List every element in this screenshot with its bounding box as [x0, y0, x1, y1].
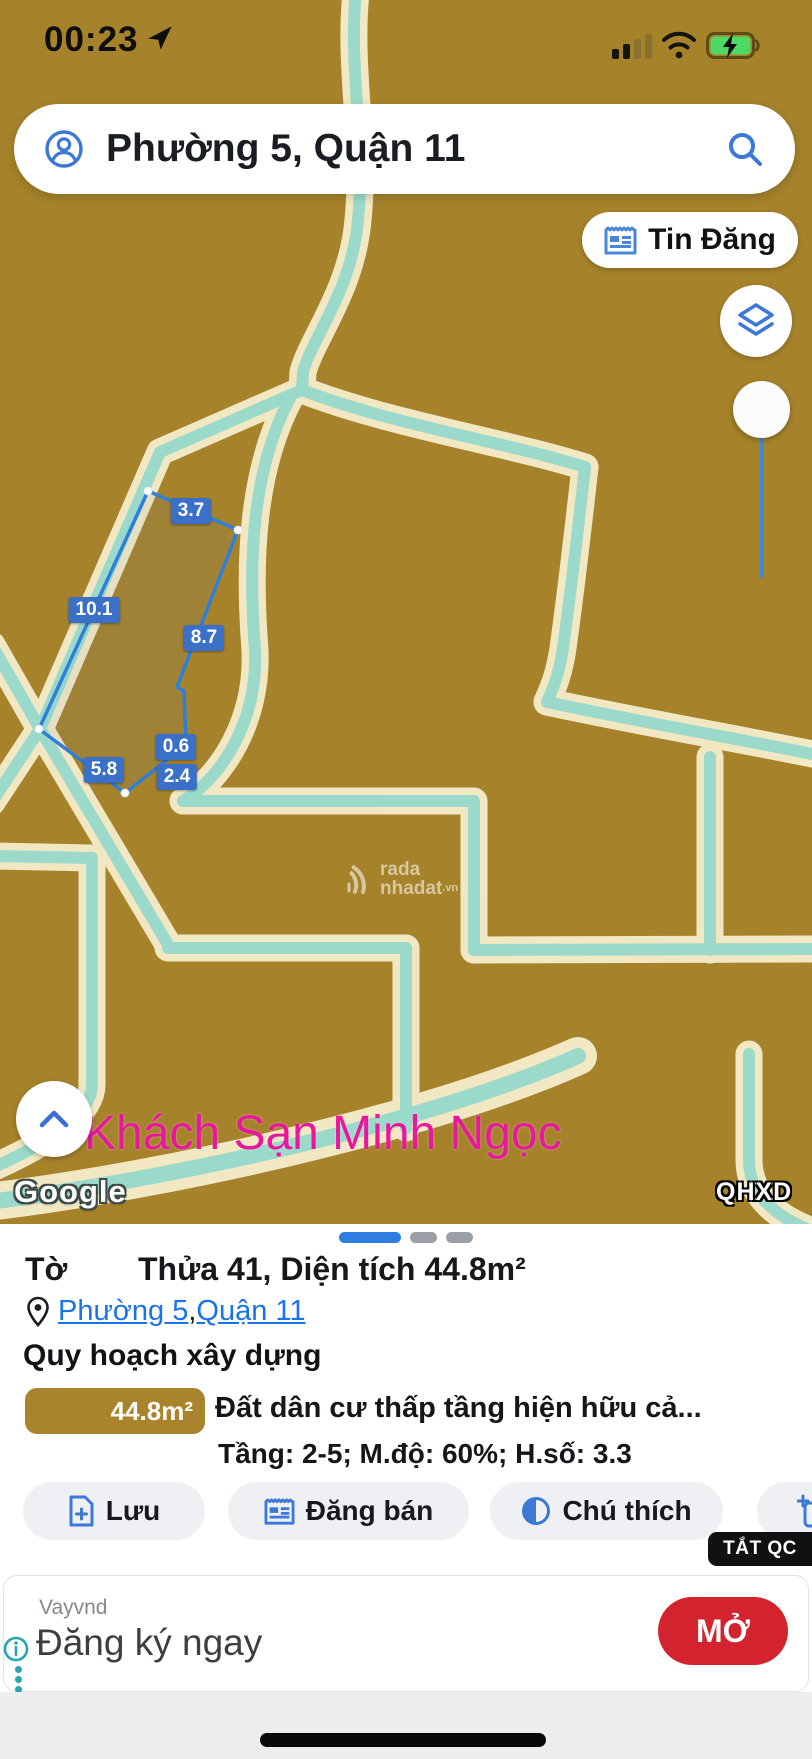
- legend-button-label: Chú thích: [562, 1495, 691, 1527]
- radanhadat-watermark: rada nhadat.vn: [344, 860, 458, 898]
- ad-info-icon[interactable]: [3, 1636, 29, 1662]
- location-row: Phường 5, Quận 11: [26, 1295, 306, 1328]
- save-button-label: Lưu: [106, 1495, 160, 1527]
- zoom-slider-knob[interactable]: [733, 381, 790, 438]
- contrast-icon: [521, 1496, 551, 1526]
- wifi-icon: [661, 31, 697, 59]
- layers-icon: [734, 301, 778, 341]
- page-dot[interactable]: [410, 1232, 437, 1243]
- legend-button[interactable]: Chú thích: [490, 1482, 723, 1540]
- radar-logo-icon: [344, 864, 374, 894]
- area-badge: 44.8m²: [25, 1388, 205, 1434]
- phone-screen: 3.7 10.1 8.7 0.6 5.8 2.4 rada nhadat.vn …: [0, 0, 812, 1759]
- dismiss-ad-button[interactable]: TẮT QC: [708, 1532, 812, 1566]
- measurement-label: 3.7: [171, 498, 211, 524]
- ad-options-icon[interactable]: [14, 1666, 22, 1693]
- save-button[interactable]: Lưu: [23, 1482, 205, 1540]
- search-bar[interactable]: Phường 5, Quận 11: [14, 104, 795, 194]
- google-logo: Google: [14, 1174, 127, 1210]
- listings-button-label: Tin Đăng: [648, 223, 776, 257]
- camera-plus-icon: [797, 1494, 812, 1528]
- expand-panel-button[interactable]: [16, 1081, 92, 1157]
- ad-headline[interactable]: Đăng ký ngay: [36, 1622, 262, 1664]
- map-pin-icon: [26, 1296, 50, 1328]
- qhxd-layer-label: QHXD: [716, 1178, 792, 1207]
- measurement-label: 5.8: [84, 757, 124, 783]
- zoning-type[interactable]: Đất dân cư thấp tầng hiện hữu cả...: [215, 1392, 795, 1425]
- battery-charging-icon: [706, 32, 762, 59]
- file-plus-icon: [68, 1495, 95, 1527]
- signal-strength-icon: [612, 32, 654, 59]
- home-indicator[interactable]: [260, 1733, 546, 1747]
- search-icon[interactable]: [725, 129, 765, 169]
- post-sale-button-label: Đăng bán: [306, 1495, 434, 1527]
- measurement-label: 8.7: [184, 625, 224, 651]
- chevron-up-icon: [37, 1108, 71, 1130]
- post-sale-button[interactable]: Đăng bán: [228, 1482, 469, 1540]
- clock: 00:23: [44, 20, 139, 60]
- search-input[interactable]: Phường 5, Quận 11: [106, 127, 725, 171]
- page-dot-active[interactable]: [339, 1232, 401, 1243]
- listings-button[interactable]: Tin Đăng: [582, 212, 798, 268]
- parcel-title: Tờ Thửa 41, Diện tích 44.8m²: [25, 1251, 67, 1288]
- location-arrow-icon: [146, 24, 174, 52]
- zoom-slider-track[interactable]: [760, 437, 764, 578]
- sheet-label: Tờ: [25, 1251, 67, 1287]
- zoning-detail: Tầng: 2-5; M.độ: 60%; H.số: 3.3: [218, 1438, 632, 1470]
- measurement-label: 10.1: [69, 597, 120, 623]
- newspaper-icon: [604, 225, 637, 256]
- zoning-heading: Quy hoạch xây dựng: [23, 1339, 321, 1373]
- location-separator: ,: [188, 1295, 196, 1328]
- measurement-label: 0.6: [156, 734, 196, 760]
- ward-link[interactable]: Phường 5: [58, 1295, 188, 1328]
- newspaper-icon: [264, 1497, 295, 1526]
- account-icon[interactable]: [44, 129, 84, 169]
- ad-advertiser: Vayvnd: [39, 1596, 108, 1620]
- map-layers-button[interactable]: [720, 285, 792, 357]
- page-dot[interactable]: [446, 1232, 473, 1243]
- measurement-label: 2.4: [157, 764, 197, 790]
- poi-label-hotel[interactable]: Khách Sạn Minh Ngọc: [84, 1106, 562, 1161]
- district-link[interactable]: Quận 11: [196, 1295, 305, 1328]
- page-indicator[interactable]: [0, 1232, 812, 1243]
- parcel-title-main: Thửa 41, Diện tích 44.8m²: [138, 1251, 526, 1288]
- bottom-safe-area: [0, 1692, 812, 1759]
- ad-cta-button[interactable]: MỞ: [658, 1597, 788, 1665]
